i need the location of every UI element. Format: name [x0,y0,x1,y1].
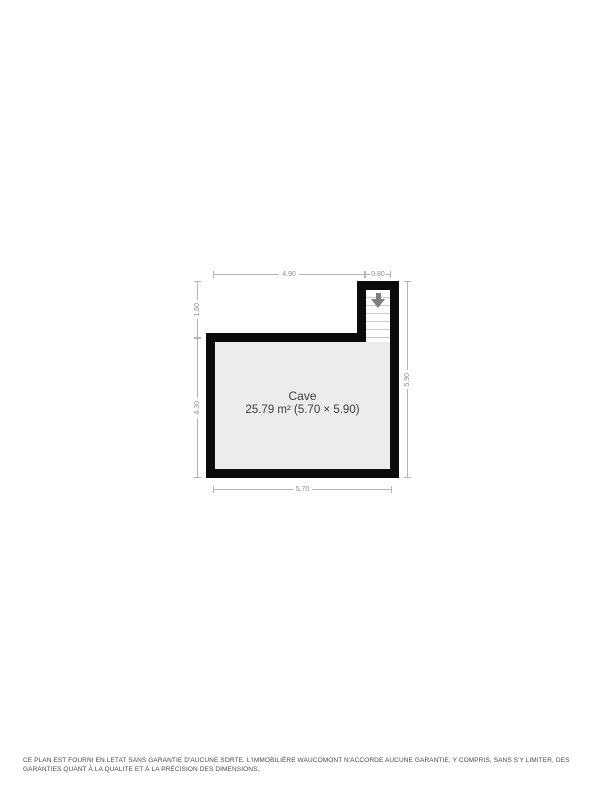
wall [206,333,366,342]
dimension-line [407,282,408,370]
dimension-line [197,339,198,398]
dimension-label: 5.70 [293,486,313,493]
dimension-top-left: 4.90 [213,271,365,278]
dimension-tick [194,477,201,478]
dimension-tick [390,271,391,278]
dimension-line [214,274,279,275]
room-name: Cave [215,389,390,403]
dimension-tick [404,477,411,478]
dimension-label: 4.30 [194,398,201,418]
arrow-head [371,299,385,308]
dimension-line [197,418,198,477]
dimension-label: 0.80 [370,271,386,278]
dimension-left-upper: 1.60 [194,281,201,338]
disclaimer-text: CE PLAN EST FOURNI EN LETAT SANS GARANTI… [23,756,571,774]
dimension-tick [391,486,392,493]
wall [206,469,399,478]
dimension-line [214,489,293,490]
dimension-label: 4.90 [279,271,299,278]
dimension-right: 5.90 [404,281,411,478]
dimension-label: 5.90 [404,370,411,390]
room-area: 25.79 m² (5.70 × 5.90) [215,403,390,417]
floorplan-canvas: 4.90 0.80 1.60 4.30 5.90 5.70 [0,0,603,800]
dimension-line [407,389,408,477]
stairs-down-arrow-icon [371,293,385,308]
dimension-label: 1.60 [194,300,201,320]
room-label: Cave 25.79 m² (5.70 × 5.90) [215,389,390,417]
dimension-line [197,319,198,337]
dimension-bottom: 5.70 [213,486,392,493]
dimension-line [197,282,198,300]
wall [206,333,215,478]
dimension-line [312,489,391,490]
dimension-line [299,274,364,275]
wall [390,281,399,478]
dimension-top-right: 0.80 [365,271,391,278]
dimension-left-lower: 4.30 [194,338,201,478]
